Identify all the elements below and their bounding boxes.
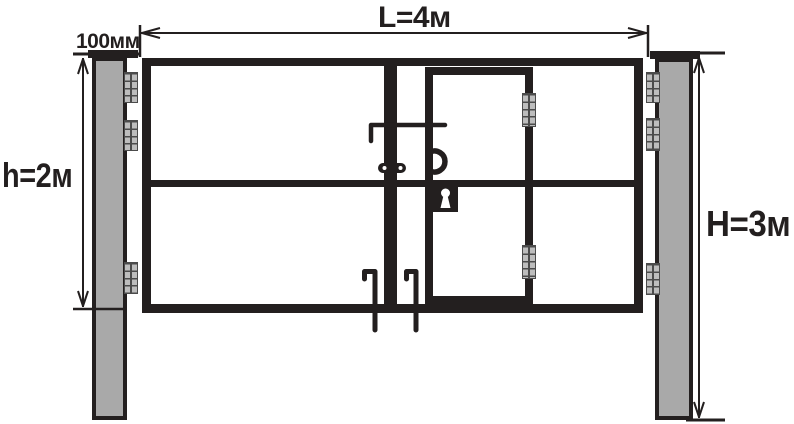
- right-post: [655, 58, 693, 420]
- gate-width-dimension-label: L=4м: [378, 3, 451, 33]
- door-hinge-top: [522, 93, 536, 127]
- left-gate-hinge-top: [124, 72, 138, 103]
- gate-technical-drawing: 100мм L=4м h=2м H=3м: [0, 0, 794, 424]
- gate-left-stile: [142, 58, 151, 313]
- door-hinge-bottom: [522, 245, 536, 279]
- right-drop-bolt: [407, 272, 417, 331]
- left-gate-hinge-bottom: [124, 262, 138, 294]
- right-gate-hinge-bottom: [646, 263, 660, 295]
- right-gate-hinge-upper: [646, 118, 660, 151]
- left-gate-hinge-upper: [124, 120, 138, 151]
- gate-center-stile: [384, 58, 397, 313]
- gate-right-stile: [634, 58, 643, 313]
- left-drop-bolt: [365, 272, 376, 331]
- post-height-dimension-label: H=3м: [706, 206, 790, 242]
- right-gate-hinge-top: [646, 72, 660, 103]
- left-post: [92, 57, 127, 420]
- post-width-dimension-label: 100мм: [76, 31, 140, 52]
- wicket-door-frame: [425, 67, 533, 304]
- gate-height-dimension-label: h=2м: [2, 159, 72, 193]
